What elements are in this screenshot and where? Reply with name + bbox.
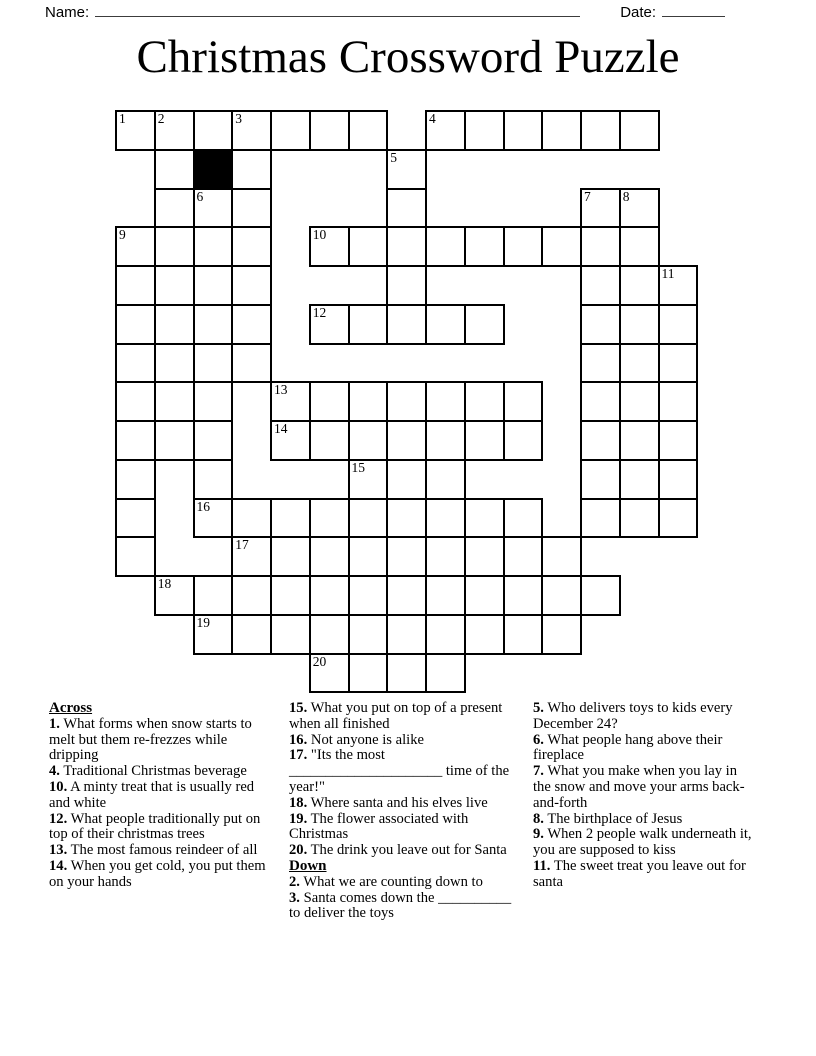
grid-cell bbox=[464, 575, 505, 616]
grid-cell bbox=[309, 498, 350, 539]
clue-number: 2. bbox=[289, 874, 300, 890]
grid-cell bbox=[386, 459, 427, 500]
grid-cell: 6 bbox=[193, 188, 234, 229]
clue-down-5: 5. Who delivers toys to kids every Decem… bbox=[533, 701, 757, 733]
grid-cell bbox=[231, 498, 272, 539]
grid-cell bbox=[115, 459, 156, 500]
grid-cell bbox=[658, 343, 699, 384]
grid-cell bbox=[309, 536, 350, 577]
cell-number: 16 bbox=[197, 500, 211, 513]
grid-cell bbox=[658, 498, 699, 539]
clue-number: 8. bbox=[533, 811, 544, 827]
grid-cell bbox=[503, 614, 544, 655]
grid-cell bbox=[115, 343, 156, 384]
grid-cell bbox=[386, 498, 427, 539]
grid-cell bbox=[541, 110, 582, 151]
grid-cell bbox=[464, 110, 505, 151]
grid-cell: 1 bbox=[115, 110, 156, 151]
grid-cell bbox=[231, 265, 272, 306]
clue-number: 19. bbox=[289, 811, 307, 827]
grid-cell bbox=[619, 420, 660, 461]
grid-cell bbox=[658, 420, 699, 461]
clue-down-3: 3. Santa comes down the __________ to de… bbox=[289, 891, 515, 923]
date-line bbox=[662, 2, 725, 17]
cell-number: 12 bbox=[313, 306, 327, 319]
grid-cell bbox=[348, 575, 389, 616]
grid-cell bbox=[348, 498, 389, 539]
grid-cell bbox=[309, 110, 350, 151]
grid-cell bbox=[154, 343, 195, 384]
grid-cell bbox=[309, 381, 350, 422]
grid-cell bbox=[619, 381, 660, 422]
grid-cell bbox=[464, 226, 505, 267]
grid-cell bbox=[270, 614, 311, 655]
grid-cell bbox=[115, 536, 156, 577]
name-line bbox=[95, 2, 580, 17]
grid-cell bbox=[580, 110, 621, 151]
grid-cell bbox=[425, 536, 466, 577]
grid-cell bbox=[425, 653, 466, 694]
grid-cell: 8 bbox=[619, 188, 660, 229]
clue-across-4: 4. Traditional Christmas beverage bbox=[49, 764, 267, 780]
clue-number: 9. bbox=[533, 826, 544, 842]
grid-cell bbox=[154, 149, 195, 190]
cell-number: 2 bbox=[158, 112, 165, 125]
grid-cell bbox=[193, 459, 234, 500]
grid-cell bbox=[348, 226, 389, 267]
grid-cell bbox=[193, 381, 234, 422]
grid-cell bbox=[309, 575, 350, 616]
clue-number: 14. bbox=[49, 858, 67, 874]
grid-cell bbox=[231, 226, 272, 267]
grid-cell: 13 bbox=[270, 381, 311, 422]
grid-cell bbox=[154, 226, 195, 267]
grid-cell bbox=[503, 420, 544, 461]
clue-across-1: 1. What forms when snow starts to melt b… bbox=[49, 717, 267, 764]
grid-cell bbox=[386, 226, 427, 267]
clue-across-19: 19. The flower associated with Christmas bbox=[289, 812, 515, 844]
grid-cell bbox=[386, 265, 427, 306]
grid-cell bbox=[425, 498, 466, 539]
worksheet-page: Name: Date: Christmas Crossword Puzzle 1… bbox=[0, 0, 816, 1056]
grid-cell bbox=[154, 304, 195, 345]
grid-cell: 3 bbox=[231, 110, 272, 151]
cell-number: 20 bbox=[313, 655, 327, 668]
cell-number: 6 bbox=[197, 190, 204, 203]
cell-number: 17 bbox=[235, 538, 249, 551]
grid-cell bbox=[231, 149, 272, 190]
grid-cell bbox=[231, 343, 272, 384]
grid-cell bbox=[193, 265, 234, 306]
grid-cell bbox=[658, 304, 699, 345]
clue-number: 10. bbox=[49, 779, 67, 795]
grid-cell bbox=[270, 498, 311, 539]
grid-cell bbox=[154, 188, 195, 229]
grid-cell bbox=[580, 381, 621, 422]
clue-number: 20. bbox=[289, 842, 307, 858]
grid-cell bbox=[193, 304, 234, 345]
grid-cell: 9 bbox=[115, 226, 156, 267]
grid-cell bbox=[619, 110, 660, 151]
across-heading: Across bbox=[49, 701, 267, 717]
grid-cell bbox=[541, 575, 582, 616]
cell-number: 5 bbox=[390, 151, 397, 164]
grid-cell bbox=[270, 575, 311, 616]
grid-cell bbox=[580, 420, 621, 461]
grid-cell bbox=[658, 459, 699, 500]
cell-number: 15 bbox=[352, 461, 366, 474]
grid-cell bbox=[386, 614, 427, 655]
grid-cell bbox=[309, 614, 350, 655]
cell-number: 11 bbox=[662, 267, 675, 280]
grid-cell: 11 bbox=[658, 265, 699, 306]
grid-cell bbox=[348, 653, 389, 694]
grid-cell bbox=[425, 459, 466, 500]
grid-cell bbox=[386, 575, 427, 616]
grid-cell bbox=[503, 110, 544, 151]
crossword-grid: 1234567891011121314151617181920 bbox=[115, 110, 698, 693]
grid-cell bbox=[386, 420, 427, 461]
grid-cell: 16 bbox=[193, 498, 234, 539]
grid-cell bbox=[464, 381, 505, 422]
grid-cell: 7 bbox=[580, 188, 621, 229]
grid-cell bbox=[348, 420, 389, 461]
clue-across-14: 14. When you get cold, you put them on y… bbox=[49, 859, 267, 891]
grid-cell bbox=[658, 381, 699, 422]
clue-number: 15. bbox=[289, 700, 307, 716]
grid-cell bbox=[348, 614, 389, 655]
grid-cell bbox=[503, 381, 544, 422]
grid-cell bbox=[348, 536, 389, 577]
cell-number: 7 bbox=[584, 190, 591, 203]
grid-cell bbox=[270, 110, 311, 151]
clue-number: 5. bbox=[533, 700, 544, 716]
grid-cell bbox=[464, 536, 505, 577]
grid-cell: 18 bbox=[154, 575, 195, 616]
grid-cell bbox=[425, 381, 466, 422]
clue-across-13: 13. The most famous reindeer of all bbox=[49, 843, 267, 859]
clue-down-7: 7. What you make when you lay in the sno… bbox=[533, 764, 757, 811]
grid-cell bbox=[619, 498, 660, 539]
grid-cell: 15 bbox=[348, 459, 389, 500]
grid-cell bbox=[425, 304, 466, 345]
clue-column-down: 5. Who delivers toys to kids every Decem… bbox=[533, 701, 757, 891]
grid-cell bbox=[193, 343, 234, 384]
grid-cell bbox=[348, 381, 389, 422]
date-label: Date: bbox=[620, 4, 656, 21]
grid-cell bbox=[270, 536, 311, 577]
cell-number: 13 bbox=[274, 383, 288, 396]
grid-cell bbox=[580, 498, 621, 539]
grid-cell bbox=[115, 265, 156, 306]
clue-across-12: 12. What people traditionally put on top… bbox=[49, 812, 267, 844]
name-label: Name: bbox=[45, 4, 89, 21]
grid-cell bbox=[503, 226, 544, 267]
clue-across-15: 15. What you put on top of a present whe… bbox=[289, 701, 515, 733]
grid-cell: 17 bbox=[231, 536, 272, 577]
clue-number: 7. bbox=[533, 763, 544, 779]
grid-cell bbox=[386, 381, 427, 422]
cell-number: 1 bbox=[119, 112, 126, 125]
grid-cell bbox=[580, 226, 621, 267]
grid-cell bbox=[231, 614, 272, 655]
clue-column-middle: 15. What you put on top of a present whe… bbox=[289, 701, 515, 922]
grid-cell: 4 bbox=[425, 110, 466, 151]
grid-cell bbox=[580, 459, 621, 500]
clue-across-17: 17. "Its the most _____________________ … bbox=[289, 748, 515, 795]
grid-cell bbox=[115, 304, 156, 345]
grid-cell bbox=[115, 498, 156, 539]
cell-number: 10 bbox=[313, 228, 327, 241]
grid-cell bbox=[193, 226, 234, 267]
grid-cell bbox=[503, 575, 544, 616]
grid-cell bbox=[231, 304, 272, 345]
grid-cell bbox=[115, 420, 156, 461]
grid-cell bbox=[425, 420, 466, 461]
grid-cell bbox=[386, 653, 427, 694]
grid-cell bbox=[154, 381, 195, 422]
grid-cell bbox=[386, 536, 427, 577]
grid-cell bbox=[580, 575, 621, 616]
grid-cell bbox=[154, 265, 195, 306]
grid-cell bbox=[231, 575, 272, 616]
grid-cell bbox=[425, 226, 466, 267]
grid-cell bbox=[619, 343, 660, 384]
grid-cell bbox=[425, 575, 466, 616]
grid-cell bbox=[619, 304, 660, 345]
clue-across-10: 10. A minty treat that is usually red an… bbox=[49, 780, 267, 812]
clue-number: 18. bbox=[289, 795, 307, 811]
clue-down-8: 8. The birthplace of Jesus bbox=[533, 812, 757, 828]
grid-cell bbox=[386, 304, 427, 345]
grid-cell bbox=[541, 614, 582, 655]
grid-cell: 12 bbox=[309, 304, 350, 345]
grid-cell bbox=[619, 265, 660, 306]
page-title: Christmas Crossword Puzzle bbox=[0, 31, 816, 83]
grid-cell bbox=[115, 381, 156, 422]
clue-number: 16. bbox=[289, 732, 307, 748]
grid-cell bbox=[580, 343, 621, 384]
grid-cell: 19 bbox=[193, 614, 234, 655]
grid-cell bbox=[193, 110, 234, 151]
grid-cell bbox=[580, 265, 621, 306]
clue-down-6: 6. What people hang above their fireplac… bbox=[533, 733, 757, 765]
grid-cell bbox=[503, 536, 544, 577]
cell-number: 19 bbox=[197, 616, 211, 629]
grid-cell bbox=[464, 498, 505, 539]
grid-cell: 10 bbox=[309, 226, 350, 267]
grid-cell bbox=[386, 188, 427, 229]
clue-number: 1. bbox=[49, 716, 60, 732]
cell-number: 4 bbox=[429, 112, 436, 125]
grid-cell bbox=[193, 575, 234, 616]
cell-number: 18 bbox=[158, 577, 172, 590]
grid-cell bbox=[619, 459, 660, 500]
clue-number: 3. bbox=[289, 890, 300, 906]
grid-cell bbox=[580, 304, 621, 345]
grid-cell bbox=[464, 304, 505, 345]
clue-across-16: 16. Not anyone is alike bbox=[289, 733, 515, 749]
clue-number: 11. bbox=[533, 858, 550, 874]
clue-down-2: 2. What we are counting down to bbox=[289, 875, 515, 891]
cell-number: 3 bbox=[235, 112, 242, 125]
clue-down-11: 11. The sweet treat you leave out for sa… bbox=[533, 859, 757, 891]
grid-cell bbox=[231, 188, 272, 229]
cell-number: 8 bbox=[623, 190, 630, 203]
cell-number: 14 bbox=[274, 422, 288, 435]
clue-across-20: 20. The drink you leave out for Santa bbox=[289, 843, 515, 859]
clue-number: 4. bbox=[49, 763, 60, 779]
grid-cell: 2 bbox=[154, 110, 195, 151]
grid-cell-black bbox=[193, 149, 234, 190]
grid-cell: 20 bbox=[309, 653, 350, 694]
grid-cell bbox=[464, 614, 505, 655]
grid-cell bbox=[619, 226, 660, 267]
grid-cell bbox=[348, 110, 389, 151]
clue-across-18: 18. Where santa and his elves live bbox=[289, 796, 515, 812]
grid-cell bbox=[541, 536, 582, 577]
clue-column-across: Across1. What forms when snow starts to … bbox=[49, 701, 267, 891]
header: Name: Date: bbox=[45, 2, 771, 21]
clue-number: 17. bbox=[289, 747, 307, 763]
grid-cell: 14 bbox=[270, 420, 311, 461]
grid-cell bbox=[503, 498, 544, 539]
grid-cell bbox=[541, 226, 582, 267]
grid-cell bbox=[464, 420, 505, 461]
grid-cell bbox=[309, 420, 350, 461]
grid-cell bbox=[193, 420, 234, 461]
grid-cell bbox=[348, 304, 389, 345]
clue-down-9: 9. When 2 people walk underneath it, you… bbox=[533, 827, 757, 859]
cell-number: 9 bbox=[119, 228, 126, 241]
grid-cell bbox=[425, 614, 466, 655]
clue-number: 6. bbox=[533, 732, 544, 748]
clue-number: 12. bbox=[49, 811, 67, 827]
grid-cell bbox=[154, 420, 195, 461]
clue-number: 13. bbox=[49, 842, 67, 858]
grid-cell: 5 bbox=[386, 149, 427, 190]
down-heading: Down bbox=[289, 859, 515, 875]
